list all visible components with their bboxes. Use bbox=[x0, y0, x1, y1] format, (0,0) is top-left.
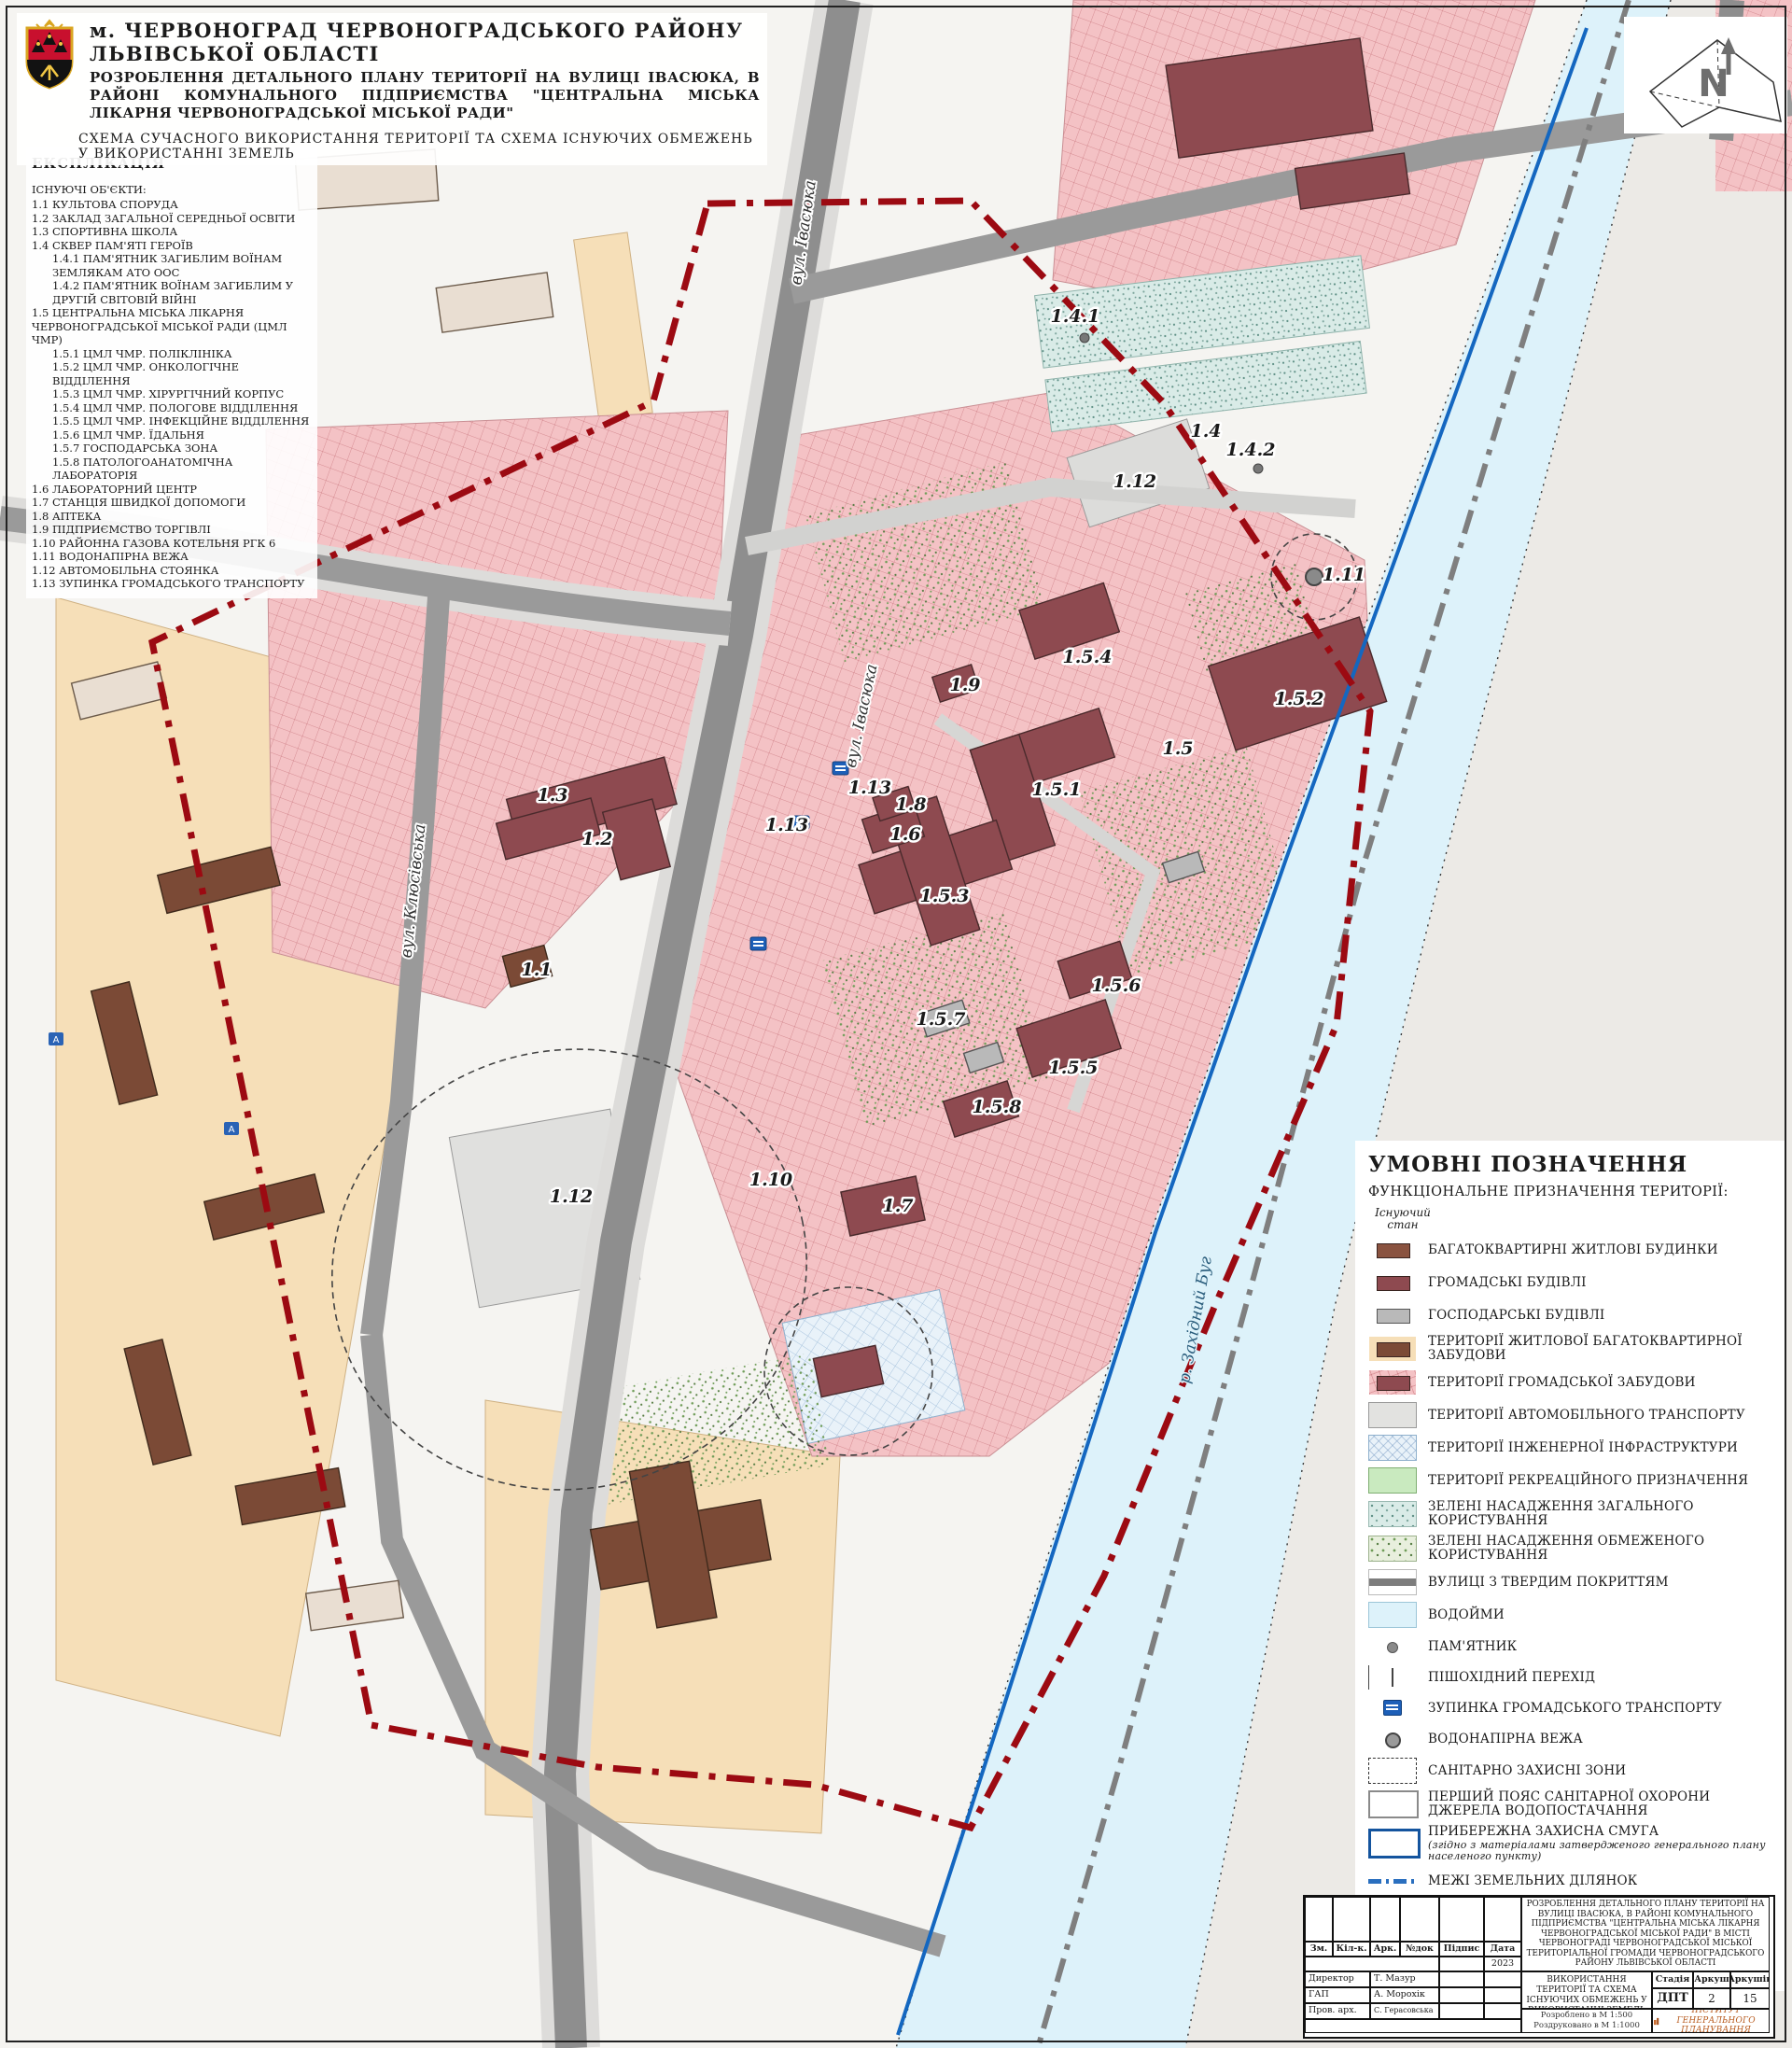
stamp-scale-line1: Розроблено в М 1:500 bbox=[1541, 2011, 1632, 2021]
explication-item: 1.5 ЦЕНТРАЛЬНА МІСЬКА ЛІКАРНЯ ЧЕРВОНОГРА… bbox=[32, 306, 312, 347]
legend-item: ВОДОЙМИ bbox=[1368, 1602, 1775, 1628]
bus-stop-icon[interactable] bbox=[750, 937, 766, 950]
object-number-label: 1.8 bbox=[895, 794, 926, 815]
stamp-stage-value: ДПТ bbox=[1652, 1988, 1693, 2009]
stamp-scale-line2: Роздруковано в М 1:1000 bbox=[1533, 2021, 1640, 2031]
explication-item: 1.10 РАЙОННА ГАЗОВА КОТЕЛЬНЯ РГК 6 bbox=[32, 537, 312, 551]
legend-item: ТЕРИТОРІЇ РЕКРЕАЦІЙНОГО ПРИЗНАЧЕННЯ bbox=[1368, 1467, 1775, 1494]
object-number-label: 1.5.7 bbox=[917, 1009, 966, 1030]
explication-item: 1.3 СПОРТИВНА ШКОЛА bbox=[32, 225, 312, 239]
stamp-sheets-label: Аркушів bbox=[1730, 1971, 1770, 1988]
object-number-label: 1.12 bbox=[550, 1186, 593, 1207]
north-arrow: N bbox=[1624, 17, 1787, 133]
sheet-header: м. ЧЕРВОНОГРАД ЧЕРВОНОГРАДСЬКОГО РАЙОНУ … bbox=[17, 13, 767, 165]
explication-item: 1.5.8 ПАТОЛОГОАНАТОМІЧНА ЛАБОРАТОРІЯ bbox=[32, 456, 312, 483]
stamp-role-3: Пров. арх. bbox=[1305, 2003, 1370, 2019]
legend-item-label: ТЕРИТОРІЇ ІНЖЕНЕРНОЇ ІНФРАСТРУКТУРИ bbox=[1428, 1441, 1738, 1455]
water-tower-1-11[interactable] bbox=[1306, 568, 1323, 585]
object-number-label: 1.7 bbox=[882, 1196, 913, 1216]
city-coat-of-arms bbox=[22, 19, 77, 90]
legend-item-label: ГРОМАДСЬКІ БУДІВЛІ bbox=[1428, 1276, 1587, 1290]
object-number-label: 1.1 bbox=[521, 960, 552, 980]
legend-item-label: ПІШОХІДНИЙ ПЕРЕХІД bbox=[1428, 1671, 1595, 1685]
object-number-label: 1.4.2 bbox=[1226, 440, 1276, 460]
legend-item: БАГАТОКВАРТИРНІ ЖИТЛОВІ БУДИНКИ bbox=[1368, 1237, 1775, 1263]
stamp-col-ark: Арк. bbox=[1370, 1942, 1400, 1957]
legend-item: ВУЛИЦІ З ТВЕРДИМ ПОКРИТТЯМ bbox=[1368, 1569, 1775, 1595]
object-number-label: 1.13 bbox=[848, 778, 891, 798]
legend-item-label: ПАМ'ЯТНИК bbox=[1428, 1640, 1517, 1654]
object-number-label: 1.5.8 bbox=[973, 1097, 1022, 1117]
legend-item-label: БАГАТОКВАРТИРНІ ЖИТЛОВІ БУДИНКИ bbox=[1428, 1243, 1718, 1257]
explication-item: 1.4.2 ПАМ'ЯТНИК ВОЇНАМ ЗАГИБЛИМ У ДРУГІЙ… bbox=[32, 279, 312, 306]
legend-item: ПЕРШИЙ ПОЯС САНІТАРНОЇ ОХОРОНИ ДЖЕРЕЛА В… bbox=[1368, 1790, 1775, 1818]
sheet-title: м. ЧЕРВОНОГРАД ЧЕРВОНОГРАДСЬКОГО РАЙОНУ … bbox=[90, 19, 760, 65]
object-number-label: 1.6 bbox=[889, 824, 920, 845]
legend-item: МЕЖІ ЗЕМЕЛЬНИХ ДІЛЯНОК bbox=[1368, 1869, 1775, 1893]
explication-item: 1.1 КУЛЬТОВА СПОРУДА bbox=[32, 198, 312, 212]
sw-zone-auto-swatch bbox=[1368, 1402, 1417, 1428]
legend-item: ПАМ'ЯТНИК bbox=[1368, 1634, 1775, 1659]
sheet-scheme-title: СХЕМА СУЧАСНОГО ВИКОРИСТАННЯ ТЕРИТОРІЇ Т… bbox=[78, 132, 760, 161]
explication-item: 1.12 АВТОМОБІЛЬНА СТОЯНКА bbox=[32, 564, 312, 578]
explication-item: 1.5.1 ЦМЛ ЧМР. ПОЛІКЛІНІКА bbox=[32, 347, 312, 361]
legend-subtitle: ФУНКЦІОНАЛЬНЕ ПРИЗНАЧЕННЯ ТЕРИТОРІЇ: bbox=[1368, 1185, 1775, 1199]
legend-item-label: МЕЖІ ЗЕМЕЛЬНИХ ДІЛЯНОК bbox=[1428, 1874, 1637, 1888]
explication-item: 1.9 ПІДПРИЄМСТВО ТОРГІВЛІ bbox=[32, 523, 312, 537]
object-number-label: 1.5.4 bbox=[1063, 647, 1113, 667]
explication-item: 1.2 ЗАКЛАД ЗАГАЛЬНОЇ СЕРЕДНЬОЇ ОСВІТИ bbox=[32, 212, 312, 226]
explication-item: 1.6 ЛАБОРАТОРНИЙ ЦЕНТР bbox=[32, 483, 312, 497]
sw-szz-swatch bbox=[1368, 1758, 1417, 1784]
explication-item: 1.8 АПТЕКА bbox=[32, 510, 312, 524]
legend-item: ТЕРИТОРІЇ ГРОМАДСЬКОЇ ЗАБУДОВИ bbox=[1368, 1369, 1775, 1396]
title-block: Зм. Кіл-к. Арк. №док Підпис Дата 2023 Ди… bbox=[1303, 1895, 1775, 2039]
legend-item: ЗЕЛЕНІ НАСАДЖЕННЯ ЗАГАЛЬНОГО КОРИСТУВАНН… bbox=[1368, 1500, 1775, 1528]
legend-item-note: (згідно з матеріалами затвердженого гене… bbox=[1428, 1840, 1775, 1862]
legend-item-label: ТЕРИТОРІЇ РЕКРЕАЦІЙНОГО ПРИЗНАЧЕННЯ bbox=[1428, 1474, 1748, 1488]
legend-item: ТЕРИТОРІЇ ІНЖЕНЕРНОЇ ІНФРАСТРУКТУРИ bbox=[1368, 1435, 1775, 1461]
legend-state-label: Існуючий стан bbox=[1370, 1207, 1435, 1231]
sw-maroon-bld-swatch bbox=[1368, 1269, 1417, 1296]
explication-item: 1.5.7 ГОСПОДАРСЬКА ЗОНА bbox=[32, 442, 312, 456]
explication-item: 1.7 СТАНЦІЯ ШВИДКОЇ ДОПОМОГИ bbox=[32, 496, 312, 510]
stamp-sheets-value: 15 bbox=[1730, 1988, 1770, 2009]
sheet-project-title: РОЗРОБЛЕННЯ ДЕТАЛЬНОГО ПЛАНУ ТЕРИТОРІЇ Н… bbox=[90, 69, 760, 122]
stamp-stage-label: Стадія bbox=[1652, 1971, 1693, 1988]
legend-item-label: САНІТАРНО ЗАХИСНІ ЗОНИ bbox=[1428, 1764, 1626, 1778]
sw-zone-eng-swatch bbox=[1368, 1435, 1417, 1461]
stamp-company: ІНСТИТУТ ГЕНЕРАЛЬНОГО ПЛАНУВАННЯ bbox=[1652, 2009, 1770, 2033]
stamp-name-1: Т. Мазур bbox=[1370, 1971, 1439, 1987]
legend-item-label: ВУЛИЦІ З ТВЕРДИМ ПОКРИТТЯМ bbox=[1428, 1576, 1669, 1590]
legend-item: ПРИБЕРЕЖНА ЗАХИСНА СМУГА(згідно з матері… bbox=[1368, 1825, 1775, 1862]
explication-item: 1.4.1 ПАМ'ЯТНИК ЗАГИБЛИМ ВОЇНАМ ЗЕМЛЯКАМ… bbox=[32, 252, 312, 279]
explication-subtitle: ІСНУЮЧІ ОБ'ЄКТИ: bbox=[32, 183, 312, 196]
legend-item-label: ЗЕЛЕНІ НАСАДЖЕННЯ ОБМЕЖЕНОГО КОРИСТУВАНН… bbox=[1428, 1535, 1775, 1563]
stamp-col-zm: Зм. bbox=[1305, 1942, 1333, 1957]
object-number-label: 1.4.1 bbox=[1051, 306, 1100, 327]
explication-item: 1.5.4 ЦМЛ ЧМР. ПОЛОГОВЕ ВІДДІЛЕННЯ bbox=[32, 401, 312, 415]
legend-item-label: ЗЕЛЕНІ НАСАДЖЕННЯ ЗАГАЛЬНОГО КОРИСТУВАНН… bbox=[1428, 1500, 1775, 1528]
stamp-name-2: А. Морохік bbox=[1370, 1987, 1439, 2003]
explication-item: 1.13 ЗУПИНКА ГРОМАДСЬКОГО ТРАНСПОРТУ bbox=[32, 577, 312, 591]
object-number-label: 1.2 bbox=[581, 829, 612, 849]
explication-item: 1.5.3 ЦМЛ ЧМР. ХІРУРГІЧНИЙ КОРПУС bbox=[32, 387, 312, 401]
sw-zone-rec-swatch bbox=[1368, 1467, 1417, 1494]
sw-parcel-swatch bbox=[1368, 1879, 1419, 1884]
stamp-company-name: ІНСТИТУТ ГЕНЕРАЛЬНОГО ПЛАНУВАННЯ bbox=[1663, 2009, 1769, 2033]
sw-crosswalk-swatch bbox=[1368, 1665, 1416, 1690]
object-number-label: 1.5 bbox=[1162, 738, 1193, 759]
stamp-name-3: С. Герасовська bbox=[1370, 2003, 1439, 2019]
legend-item-label: ПЕРШИЙ ПОЯС САНІТАРНОЇ ОХОРОНИ ДЖЕРЕЛА В… bbox=[1428, 1790, 1775, 1818]
sw-zone-res-swatch bbox=[1368, 1336, 1417, 1362]
stamp-col-doc: №док bbox=[1400, 1942, 1439, 1957]
legend-item: ВОДОНАПІРНА ВЕЖА bbox=[1368, 1727, 1775, 1751]
legend-item: ГОСПОДАРСЬКІ БУДІВЛІ bbox=[1368, 1302, 1775, 1328]
sw-street-swatch bbox=[1368, 1569, 1417, 1595]
legend-item-label: ТЕРИТОРІЇ ГРОМАДСЬКОЇ ЗАБУДОВИ bbox=[1428, 1376, 1696, 1390]
legend-item-label: ТЕРИТОРІЇ АВТОМОБІЛЬНОГО ТРАНСПОРТУ bbox=[1428, 1409, 1745, 1423]
legend-item: ГРОМАДСЬКІ БУДІВЛІ bbox=[1368, 1269, 1775, 1296]
legend-item: САНІТАРНО ЗАХИСНІ ЗОНИ bbox=[1368, 1758, 1775, 1784]
legend-item-label: ВОДОЙМИ bbox=[1428, 1608, 1505, 1622]
legend-item: ЗУПИНКА ГРОМАДСЬКОГО ТРАНСПОРТУ bbox=[1368, 1696, 1775, 1720]
sw-coast-swatch bbox=[1368, 1829, 1421, 1859]
sw-busstop-swatch bbox=[1368, 1696, 1415, 1720]
parking-icon[interactable]: А bbox=[49, 1032, 63, 1045]
explication-item: 1.5.5 ЦМЛ ЧМР. ІНФЕКЦІЙНЕ ВІДДІЛЕННЯ bbox=[32, 414, 312, 428]
sw-brown-bld-swatch bbox=[1368, 1237, 1417, 1263]
legend-panel: УМОВНІ ПОЗНАЧЕННЯ ФУНКЦІОНАЛЬНЕ ПРИЗНАЧЕ… bbox=[1355, 1141, 1785, 1991]
stamp-col-sign: Підпис bbox=[1439, 1942, 1484, 1957]
explication-item: 1.11 ВОДОНАПІРНА ВЕЖА bbox=[32, 550, 312, 564]
explication-panel: ЕКСПЛІКАЦІЯ ІСНУЮЧІ ОБ'ЄКТИ: 1.1 КУЛЬТОВ… bbox=[26, 147, 317, 598]
sw-gray-bld-swatch bbox=[1368, 1302, 1417, 1328]
sw-zone-pub-swatch bbox=[1368, 1369, 1417, 1396]
legend-item-label: ГОСПОДАРСЬКІ БУДІВЛІ bbox=[1428, 1309, 1604, 1323]
object-number-label: 1.5.6 bbox=[1092, 975, 1141, 996]
object-number-label: 1.5.2 bbox=[1275, 689, 1324, 709]
stamp-col-kilk: Кіл-к. bbox=[1333, 1942, 1370, 1957]
legend-item-label: ТЕРИТОРІЇ ЖИТЛОВОЇ БАГАТОКВАРТИРНОЇ ЗАБУ… bbox=[1428, 1335, 1775, 1363]
legend-item-label: ВОДОНАПІРНА ВЕЖА bbox=[1428, 1732, 1583, 1746]
object-number-label: 1.13 bbox=[765, 815, 808, 835]
object-number-label: 1.5.1 bbox=[1032, 779, 1082, 800]
legend-item: ЗЕЛЕНІ НАСАДЖЕННЯ ОБМЕЖЕНОГО КОРИСТУВАНН… bbox=[1368, 1535, 1775, 1563]
sw-green-pub-swatch bbox=[1368, 1501, 1417, 1527]
stamp-year: 2023 bbox=[1484, 1957, 1521, 1971]
sw-monument-swatch bbox=[1368, 1634, 1415, 1659]
legend-item: ТЕРИТОРІЇ ЖИТЛОВОЇ БАГАТОКВАРТИРНОЇ ЗАБУ… bbox=[1368, 1335, 1775, 1363]
svg-text:А: А bbox=[229, 1125, 235, 1135]
legend-item: ТЕРИТОРІЇ АВТОМОБІЛЬНОГО ТРАНСПОРТУ bbox=[1368, 1402, 1775, 1428]
sw-green-ltd-swatch bbox=[1368, 1536, 1417, 1562]
object-number-label: 1.4 bbox=[1190, 421, 1221, 442]
sw-water-swatch bbox=[1368, 1602, 1417, 1628]
legend-items: БАГАТОКВАРТИРНІ ЖИТЛОВІ БУДИНКИГРОМАДСЬК… bbox=[1368, 1237, 1775, 1971]
object-number-label: 1.3 bbox=[537, 785, 567, 806]
stamp-sheet-name: СХЕМА СУЧАСНОГО ВИКОРИСТАННЯ ТЕРИТОРІЇ Т… bbox=[1521, 1971, 1652, 2009]
stamp-project-name: РОЗРОБЛЕННЯ ДЕТАЛЬНОГО ПЛАНУ ТЕРИТОРІЇ Н… bbox=[1521, 1897, 1770, 1971]
stamp-sheet-value: 2 bbox=[1693, 1988, 1730, 2009]
sw-tower-swatch bbox=[1368, 1727, 1415, 1751]
object-number-label: 1.11 bbox=[1323, 565, 1365, 585]
explication-item: 1.5.6 ЦМЛ ЧМР. ЇДАЛЬНЯ bbox=[32, 428, 312, 442]
legend-item: ПІШОХІДНИЙ ПЕРЕХІД bbox=[1368, 1665, 1775, 1690]
stamp-role-2: ГАП bbox=[1305, 1987, 1370, 2003]
parking-icon[interactable]: А bbox=[224, 1122, 239, 1135]
explication-list: 1.1 КУЛЬТОВА СПОРУДА1.2 ЗАКЛАД ЗАГАЛЬНОЇ… bbox=[32, 198, 312, 591]
legend-item-label: ЗУПИНКА ГРОМАДСЬКОГО ТРАНСПОРТУ bbox=[1428, 1702, 1722, 1716]
monument-1-4-1[interactable] bbox=[1080, 333, 1089, 343]
object-number-label: 1.12 bbox=[1113, 471, 1156, 492]
stamp-col-date: Дата bbox=[1484, 1942, 1521, 1957]
stamp-role-1: Директор bbox=[1305, 1971, 1370, 1987]
object-number-label: 1.5.3 bbox=[920, 886, 970, 906]
object-number-label: 1.10 bbox=[749, 1170, 792, 1190]
north-letter: N bbox=[1698, 63, 1729, 105]
stamp-scale: Розроблено в М 1:500 Роздруковано в М 1:… bbox=[1521, 2009, 1652, 2033]
explication-item: 1.4 СКВЕР ПАМ'ЯТІ ГЕРОЇВ bbox=[32, 239, 312, 253]
object-number-label: 1.9 bbox=[949, 675, 980, 695]
stamp-sheet-label: Аркуш bbox=[1693, 1971, 1730, 1988]
plan-sheet: А А 1.11.21.31.41.4.11.4.21.51.5.11.5.21… bbox=[0, 0, 1792, 2048]
object-number-label: 1.5.5 bbox=[1049, 1058, 1099, 1078]
legend-item-label: ПРИБЕРЕЖНА ЗАХИСНА СМУГА(згідно з матері… bbox=[1428, 1825, 1775, 1862]
svg-text:А: А bbox=[53, 1035, 60, 1045]
company-logo-icon bbox=[1653, 2013, 1659, 2028]
explication-item: 1.5.2 ЦМЛ ЧМР. ОНКОЛОГІЧНЕ ВІДДІЛЕННЯ bbox=[32, 360, 312, 387]
monument-1-4-2[interactable] bbox=[1253, 464, 1263, 473]
legend-title: УМОВНІ ПОЗНАЧЕННЯ bbox=[1368, 1152, 1775, 1177]
sw-sanbelt-swatch bbox=[1368, 1790, 1419, 1818]
